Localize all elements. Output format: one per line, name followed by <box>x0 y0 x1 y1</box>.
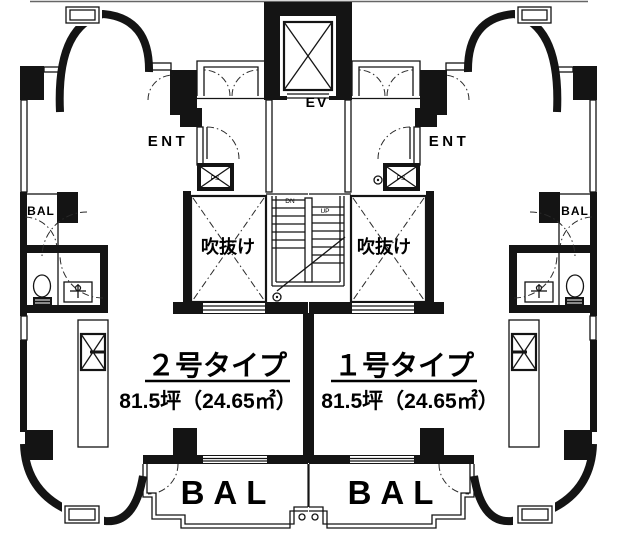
stairs-up-label: UP <box>320 208 329 215</box>
tower-bay <box>44 3 149 112</box>
entrance-label-left: ENT <box>148 133 189 150</box>
unit2-name: ２号タイプ <box>147 350 288 381</box>
pipe-space-label-right: PS <box>397 175 406 182</box>
exterior-wall-left <box>19 66 53 460</box>
entry-hall <box>180 108 239 165</box>
side-balcony-label-right: BAL <box>561 204 589 218</box>
unit1-area: 81.5坪（24.65㎡） <box>321 389 498 413</box>
void-label-left: 吹抜け <box>201 236 255 257</box>
pipe-space-label-left: PS <box>211 175 220 182</box>
main-balcony-label-right: BAL <box>348 474 443 511</box>
unit-half-geometry-mirrored <box>309 3 598 528</box>
side-balcony <box>21 192 78 250</box>
entrance-porch <box>148 61 265 115</box>
void-label-right: 吹抜け <box>357 236 411 257</box>
toilet-room <box>20 212 108 313</box>
elevator-label: EV <box>306 94 329 110</box>
kitchen-counter <box>78 320 108 447</box>
unit2-area: 81.5坪（24.65㎡） <box>119 389 296 413</box>
unit1-name: １号タイプ <box>334 350 475 381</box>
floor-plan-drawing: EV ENT ENT 吹抜け 吹抜け PS PS DN UP BAL BAL ２… <box>0 0 617 537</box>
side-balcony-label-left: BAL <box>27 204 55 218</box>
entrance-label-right: ENT <box>429 133 470 150</box>
elevator-shaft <box>264 2 352 100</box>
unit-divider-wall <box>303 313 314 507</box>
stairs-down-label: DN <box>285 198 295 205</box>
floor-plan: EV ENT ENT 吹抜け 吹抜け PS PS DN UP BAL BAL ２… <box>0 0 617 537</box>
main-balcony-label-left: BAL <box>181 474 276 511</box>
